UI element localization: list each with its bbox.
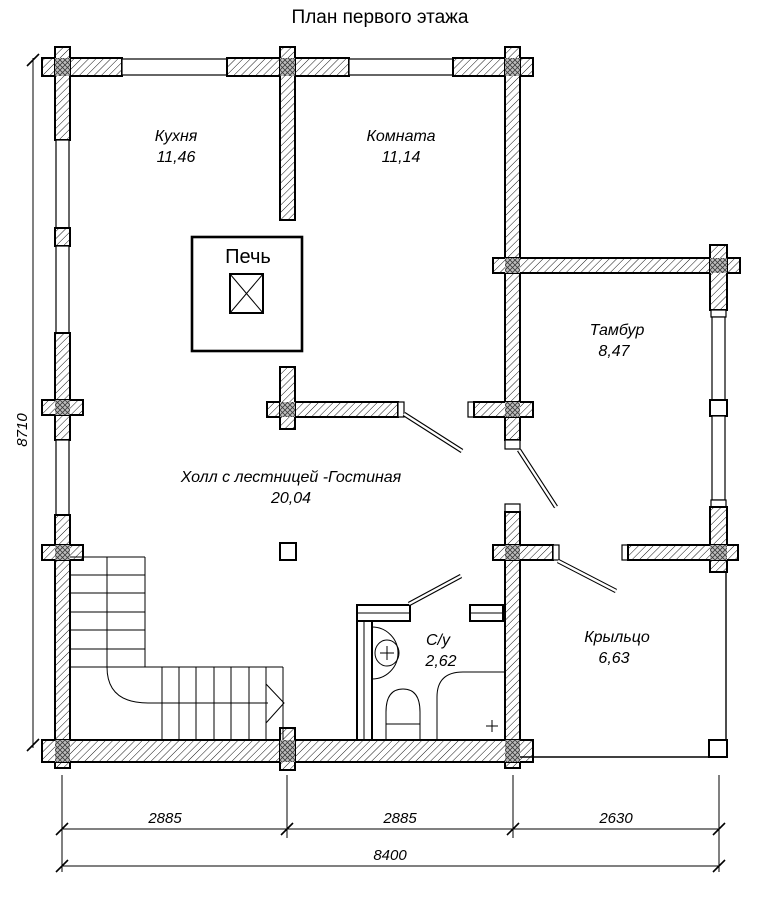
porch-post: [709, 740, 727, 757]
window: [712, 317, 725, 400]
dim-segment-3: 2630: [598, 810, 633, 827]
staircase: [70, 557, 284, 740]
window: [349, 59, 453, 75]
dim-total: 8400: [373, 847, 407, 864]
room-label-hall: Холл с лестницей -Гостиная: [180, 469, 402, 486]
window: [56, 140, 69, 228]
dim-height-label: 8710: [14, 413, 31, 447]
room-label-porch: Крыльцо: [584, 629, 650, 646]
room-area-porch: 6,63: [598, 650, 629, 667]
room-area-tambour: 8,47: [598, 343, 630, 360]
floor-plan-drawing: План первого этажа: [0, 0, 772, 894]
stove: Печь: [192, 237, 302, 351]
bathroom: [357, 605, 505, 740]
hall-wall: [474, 402, 533, 417]
toilet-icon: [386, 689, 420, 740]
door-entrance: [558, 561, 616, 591]
page-title: План первого этажа: [292, 7, 469, 28]
room-label-room: Комната: [366, 128, 435, 145]
room-label-kitchen: Кухня: [155, 128, 198, 145]
stair-walkline: [107, 667, 148, 703]
door-wc: [409, 576, 461, 604]
dimension-bottom: 2885 2885 2630 8400: [56, 775, 725, 872]
shower-corner: [437, 672, 505, 740]
room-area-wc: 2,62: [424, 653, 456, 670]
stove-label: Печь: [225, 246, 271, 268]
log-post: [280, 367, 295, 429]
window: [122, 59, 227, 75]
room-area-room: 11,14: [382, 149, 421, 166]
door-tambour: [519, 450, 556, 507]
room-area-kitchen: 11,46: [157, 149, 196, 166]
window: [712, 416, 725, 500]
dim-segment-1: 2885: [147, 810, 182, 827]
window: [56, 440, 69, 515]
floor-plan-page: План первого этажа: [0, 0, 772, 894]
dimension-left: 8710: [14, 54, 39, 751]
room-labels: Кухня 11,46 Комната 11,14 Тамбур 8,47 Хо…: [155, 128, 650, 670]
door-hall: [404, 414, 462, 451]
room-area-hall: 20,04: [270, 490, 311, 507]
dim-segment-2: 2885: [382, 810, 417, 827]
window: [56, 246, 69, 333]
column-post: [280, 543, 296, 560]
room-label-tambour: Тамбур: [590, 322, 645, 339]
stair-direction-arrow: [266, 684, 284, 723]
room-label-wc: С/у: [426, 632, 451, 649]
